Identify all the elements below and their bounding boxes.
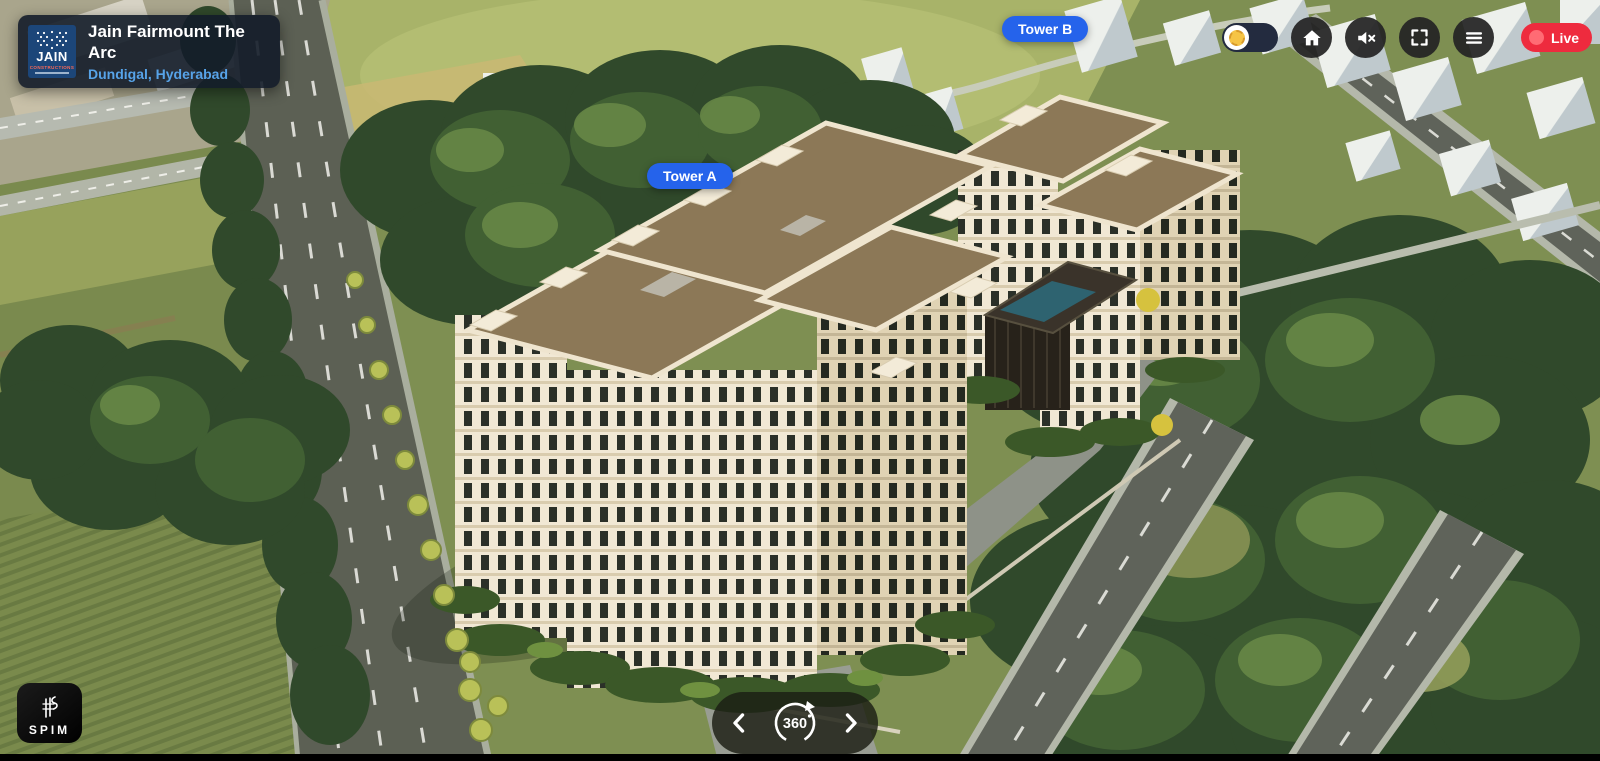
speaker-mute-icon	[1355, 27, 1377, 49]
chevron-left-icon	[731, 712, 746, 734]
chevron-right-icon	[844, 712, 859, 734]
live-label: Live	[1551, 30, 1579, 46]
day-night-toggle[interactable]	[1222, 23, 1278, 52]
rotate-360-button[interactable]: 360	[771, 699, 819, 747]
virtual-tour-viewport[interactable]: JAIN CONSTRUCTIONS Jain Fairmount The Ar…	[0, 0, 1600, 761]
live-button[interactable]: Live	[1521, 23, 1592, 52]
spim-label: SPIM	[29, 723, 70, 737]
logo-wordmark: JAIN	[36, 50, 68, 64]
project-location: Dundigal, Hyderabad	[88, 66, 266, 82]
aerial-render	[0, 0, 1600, 761]
logo-subtext: CONSTRUCTIONS	[30, 65, 74, 71]
spim-watermark: SPIM	[17, 683, 82, 743]
rotate-right-button[interactable]	[840, 708, 863, 738]
letterbox-bar	[0, 754, 1600, 761]
live-dot	[1529, 30, 1544, 45]
fullscreen-icon	[1409, 27, 1430, 48]
spim-glyph-icon	[40, 695, 60, 721]
fullscreen-button[interactable]	[1399, 17, 1440, 58]
home-button[interactable]	[1291, 17, 1332, 58]
jain-logo: JAIN CONSTRUCTIONS	[28, 25, 76, 78]
home-icon	[1301, 27, 1323, 49]
tower-a-marker[interactable]: Tower A	[647, 163, 733, 189]
svg-text:360: 360	[783, 716, 807, 732]
mute-button[interactable]	[1345, 17, 1386, 58]
hamburger-icon	[1463, 27, 1485, 49]
logo-tagline-line	[35, 72, 69, 74]
rotate-left-button[interactable]	[727, 708, 750, 738]
rotate-360-icon: 360	[771, 699, 819, 747]
project-title: Jain Fairmount The Arc	[88, 21, 266, 64]
logo-dots-pattern	[34, 30, 70, 50]
rotation-control: 360	[712, 692, 878, 754]
sun-icon	[1229, 30, 1245, 46]
toggle-thumb	[1224, 25, 1249, 50]
menu-button[interactable]	[1453, 17, 1494, 58]
tower-b-marker[interactable]: Tower B	[1002, 16, 1088, 42]
toolbar: Live	[1222, 17, 1592, 58]
project-card: JAIN CONSTRUCTIONS Jain Fairmount The Ar…	[18, 15, 280, 88]
